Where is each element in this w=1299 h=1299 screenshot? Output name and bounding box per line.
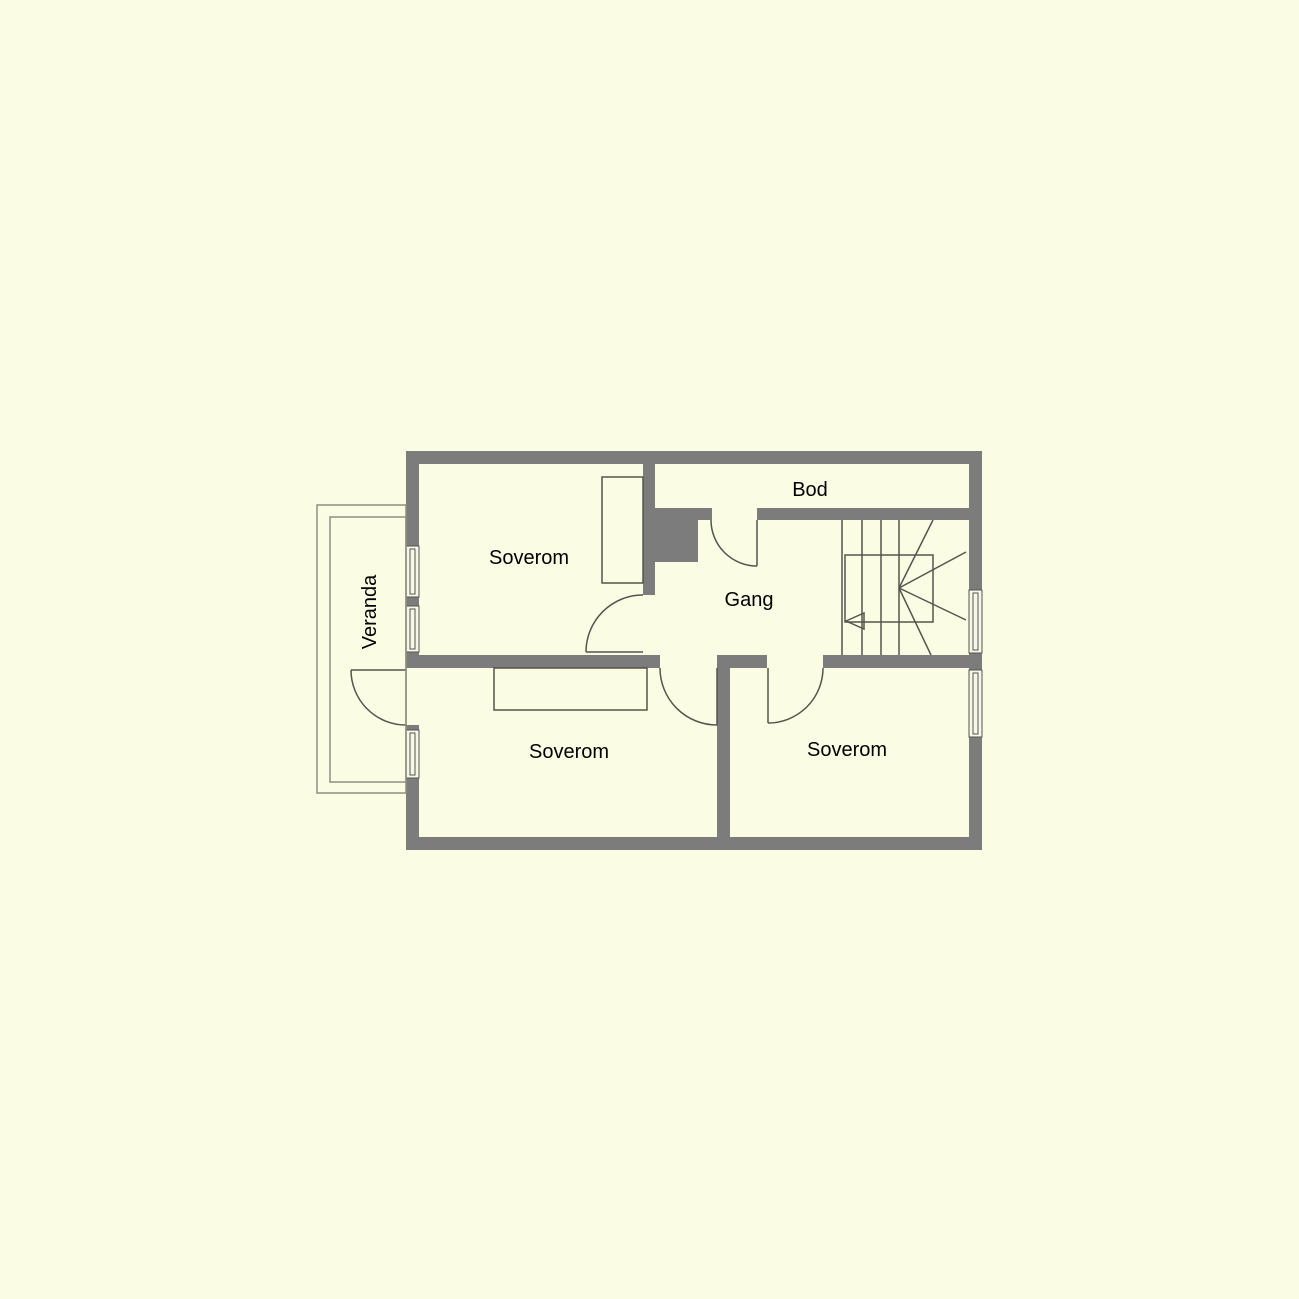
wall-segment bbox=[406, 778, 419, 850]
wall-segment bbox=[406, 597, 419, 606]
window bbox=[406, 546, 419, 597]
wall-segment bbox=[406, 725, 419, 730]
window-frame bbox=[969, 670, 982, 737]
window-frame bbox=[406, 730, 419, 778]
room-label-bedroom-nw: Soverom bbox=[489, 547, 569, 569]
wall-segment bbox=[406, 451, 982, 464]
wall-segment bbox=[643, 464, 655, 595]
window-frame bbox=[406, 546, 419, 597]
wall-segment bbox=[406, 451, 419, 546]
wall-segment bbox=[823, 655, 969, 668]
wall-segment bbox=[406, 655, 660, 668]
page-background bbox=[0, 0, 1299, 1299]
wall-segment bbox=[969, 737, 982, 850]
wall-segment bbox=[406, 837, 982, 850]
room-label-storage: Bod bbox=[792, 479, 828, 501]
room-label-veranda: Veranda bbox=[359, 574, 381, 649]
window bbox=[969, 590, 982, 653]
room-label-bedroom-sw: Soverom bbox=[529, 741, 609, 763]
window bbox=[406, 730, 419, 778]
window-frame bbox=[406, 606, 419, 652]
window-frame bbox=[969, 590, 982, 653]
wall-segment bbox=[969, 451, 982, 590]
window bbox=[406, 606, 419, 652]
wall-segment bbox=[717, 668, 730, 837]
room-label-hallway: Gang bbox=[725, 589, 774, 611]
floor-plan: Soverom Bod Gang Soverom Soverom Veranda bbox=[0, 0, 1299, 1299]
wall-segment bbox=[969, 653, 982, 670]
wall-segment bbox=[643, 508, 712, 520]
chimney-block bbox=[655, 520, 698, 562]
wall-segment bbox=[757, 508, 969, 520]
room-label-bedroom-se: Soverom bbox=[807, 739, 887, 761]
wall-segment bbox=[717, 655, 767, 668]
window bbox=[969, 670, 982, 737]
